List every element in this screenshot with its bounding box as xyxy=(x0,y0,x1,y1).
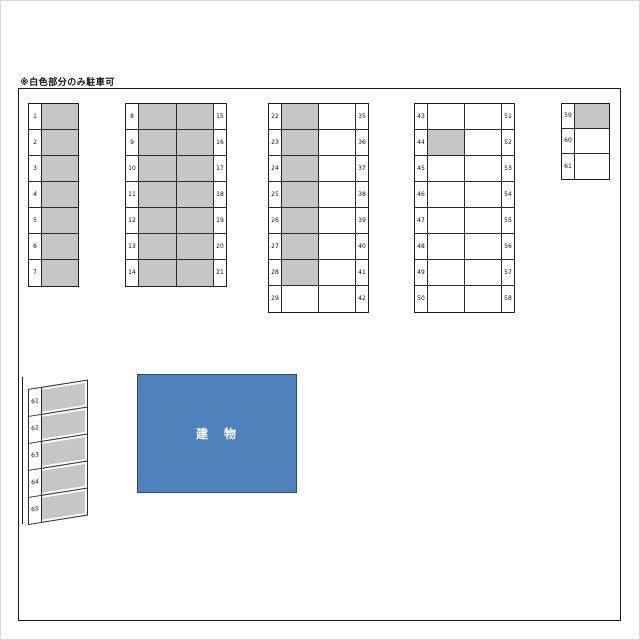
parking-space-available xyxy=(318,260,355,285)
space-number: 17 xyxy=(213,156,226,181)
parking-space-available xyxy=(464,182,501,207)
parking-row: 5058 xyxy=(415,286,514,312)
parking-row: 3 xyxy=(29,156,78,182)
space-number: 20 xyxy=(213,234,226,259)
parking-space-unavailable xyxy=(139,104,176,129)
space-number: 13 xyxy=(126,234,139,259)
space-number: 48 xyxy=(415,234,428,259)
parking-row: 2538 xyxy=(269,182,368,208)
parking-space-unavailable xyxy=(42,491,85,520)
parking-row: 1219 xyxy=(126,208,226,234)
parking-row: 61 xyxy=(562,154,609,179)
space-number: 57 xyxy=(501,260,514,285)
parking-row: 1421 xyxy=(126,260,226,286)
parking-row: 815 xyxy=(126,104,226,130)
parking-space-available xyxy=(318,286,355,312)
parking-space-unavailable xyxy=(42,104,78,129)
space-number: 11 xyxy=(126,182,139,207)
parking-space-unavailable xyxy=(139,130,176,155)
parking-space-available xyxy=(464,260,501,285)
space-number: 62 xyxy=(29,415,42,443)
space-number: 36 xyxy=(355,130,368,155)
parking-row: 4351 xyxy=(415,104,514,130)
space-number: 44 xyxy=(415,130,428,155)
parking-row: 2 xyxy=(29,130,78,156)
space-number: 58 xyxy=(501,286,514,312)
parking-space-available xyxy=(318,234,355,259)
space-number: 37 xyxy=(355,156,368,181)
space-number: 41 xyxy=(355,260,368,285)
space-number: 65 xyxy=(29,496,42,524)
space-number: 10 xyxy=(126,156,139,181)
space-number: 45 xyxy=(415,156,428,181)
space-number: 7 xyxy=(29,260,42,286)
space-number: 47 xyxy=(415,208,428,233)
parking-row: 2841 xyxy=(269,260,368,286)
parking-space-available xyxy=(282,286,318,312)
space-number: 27 xyxy=(269,234,282,259)
parking-space-available xyxy=(464,234,501,259)
space-number: 39 xyxy=(355,208,368,233)
space-number: 4 xyxy=(29,182,42,207)
parking-space-unavailable xyxy=(42,234,78,259)
parking-space-available xyxy=(428,182,464,207)
parking-space-unavailable xyxy=(42,208,78,233)
parking-row: 4654 xyxy=(415,182,514,208)
parking-space-unavailable xyxy=(575,104,609,128)
parking-space-unavailable xyxy=(176,208,214,233)
parking-row: 4755 xyxy=(415,208,514,234)
parking-space-available xyxy=(318,104,355,129)
space-number: 38 xyxy=(355,182,368,207)
parking-row: 5 xyxy=(29,208,78,234)
parking-space-available xyxy=(575,129,609,153)
parking-space-available xyxy=(428,156,464,181)
parking-space-unavailable xyxy=(42,182,78,207)
space-number: 23 xyxy=(269,130,282,155)
parking-space-unavailable xyxy=(282,234,318,259)
parking-block-1-7: 1234567 xyxy=(28,103,79,287)
space-number: 6 xyxy=(29,234,42,259)
parking-space-available xyxy=(318,182,355,207)
space-number: 25 xyxy=(269,182,282,207)
space-number: 2 xyxy=(29,130,42,155)
parking-space-unavailable xyxy=(176,260,214,286)
parking-row: 1118 xyxy=(126,182,226,208)
parking-space-unavailable xyxy=(176,130,214,155)
space-number: 61 xyxy=(562,154,575,179)
parking-block-diagonal-61-65: 6162636465 xyxy=(28,379,88,525)
parking-space-available xyxy=(464,156,501,181)
space-number: 28 xyxy=(269,260,282,285)
parking-space-available xyxy=(464,130,501,155)
parking-space-available xyxy=(318,208,355,233)
space-number: 59 xyxy=(562,104,575,128)
space-number: 16 xyxy=(213,130,226,155)
space-number: 52 xyxy=(501,130,514,155)
parking-space-available xyxy=(428,104,464,129)
parking-row: 2942 xyxy=(269,286,368,312)
space-number: 64 xyxy=(29,469,42,497)
building: 建 物 xyxy=(137,374,297,493)
space-number: 9 xyxy=(126,130,139,155)
space-number: 61 xyxy=(29,388,42,416)
parking-space-available xyxy=(575,154,609,179)
parking-row: 4856 xyxy=(415,234,514,260)
space-number: 43 xyxy=(415,104,428,129)
parking-block-8-21: 81591610171118121913201421 xyxy=(125,103,227,287)
space-number: 14 xyxy=(126,260,139,286)
parking-space-available xyxy=(464,208,501,233)
parking-space-available xyxy=(428,286,464,312)
parking-space-unavailable xyxy=(139,182,176,207)
space-number: 60 xyxy=(562,129,575,153)
parking-block-43-58: 43514452455346544755485649575058 xyxy=(414,103,515,313)
parking-space-unavailable xyxy=(282,130,318,155)
space-number: 46 xyxy=(415,182,428,207)
parking-space-unavailable xyxy=(139,208,176,233)
parking-row: 60 xyxy=(562,129,609,154)
parking-row: 2639 xyxy=(269,208,368,234)
space-number: 12 xyxy=(126,208,139,233)
parking-row: 916 xyxy=(126,130,226,156)
parking-row: 4553 xyxy=(415,156,514,182)
space-number: 15 xyxy=(213,104,226,129)
space-number: 5 xyxy=(29,208,42,233)
parking-note: ※白色部分のみ駐車可 xyxy=(20,75,115,88)
space-number: 56 xyxy=(501,234,514,259)
parking-space-available xyxy=(464,104,501,129)
space-number: 19 xyxy=(213,208,226,233)
space-number: 54 xyxy=(501,182,514,207)
space-number: 49 xyxy=(415,260,428,285)
parking-row: 7 xyxy=(29,260,78,286)
parking-row: 4452 xyxy=(415,130,514,156)
parking-row: 4957 xyxy=(415,260,514,286)
parking-row: 4 xyxy=(29,182,78,208)
space-number: 1 xyxy=(29,104,42,129)
space-number: 3 xyxy=(29,156,42,181)
parking-space-unavailable xyxy=(282,104,318,129)
space-number: 29 xyxy=(269,286,282,312)
lot-boundary-line xyxy=(22,377,23,524)
space-number: 55 xyxy=(501,208,514,233)
space-number: 22 xyxy=(269,104,282,129)
parking-row: 2336 xyxy=(269,130,368,156)
space-number: 35 xyxy=(355,104,368,129)
parking-block-22-42: 22352336243725382639274028412942 xyxy=(268,103,369,313)
parking-space-unavailable xyxy=(176,182,214,207)
parking-row: 2235 xyxy=(269,104,368,130)
parking-row: 2740 xyxy=(269,234,368,260)
parking-row: 6 xyxy=(29,234,78,260)
space-number: 18 xyxy=(213,182,226,207)
parking-space-unavailable xyxy=(42,156,78,181)
parking-space-unavailable xyxy=(42,130,78,155)
parking-space-unavailable xyxy=(282,156,318,181)
parking-space-available xyxy=(428,208,464,233)
parking-space-unavailable xyxy=(282,260,318,285)
parking-space-available xyxy=(318,130,355,155)
space-number: 63 xyxy=(29,442,42,470)
parking-row: 2437 xyxy=(269,156,368,182)
space-number: 24 xyxy=(269,156,282,181)
parking-space-available xyxy=(318,156,355,181)
parking-space-unavailable xyxy=(176,156,214,181)
parking-space-available xyxy=(428,234,464,259)
parking-space-unavailable xyxy=(139,234,176,259)
parking-space-unavailable xyxy=(176,234,214,259)
space-number: 42 xyxy=(355,286,368,312)
parking-space-unavailable xyxy=(282,208,318,233)
parking-space-unavailable xyxy=(428,130,464,155)
parking-row: 1017 xyxy=(126,156,226,182)
parking-row: 1320 xyxy=(126,234,226,260)
parking-block-59-61: 596061 xyxy=(561,103,610,180)
space-number: 21 xyxy=(213,260,226,286)
parking-space-unavailable xyxy=(139,156,176,181)
space-number: 26 xyxy=(269,208,282,233)
space-number: 53 xyxy=(501,156,514,181)
space-number: 40 xyxy=(355,234,368,259)
space-number: 50 xyxy=(415,286,428,312)
parking-space-unavailable xyxy=(139,260,176,286)
parking-row: 59 xyxy=(562,104,609,129)
parking-space-available xyxy=(428,260,464,285)
space-number: 8 xyxy=(126,104,139,129)
parking-space-unavailable xyxy=(176,104,214,129)
parking-space-available xyxy=(464,286,501,312)
space-number: 51 xyxy=(501,104,514,129)
building-label: 建 物 xyxy=(196,425,238,442)
parking-space-unavailable xyxy=(42,260,78,286)
parking-space-unavailable xyxy=(282,182,318,207)
parking-row: 1 xyxy=(29,104,78,130)
